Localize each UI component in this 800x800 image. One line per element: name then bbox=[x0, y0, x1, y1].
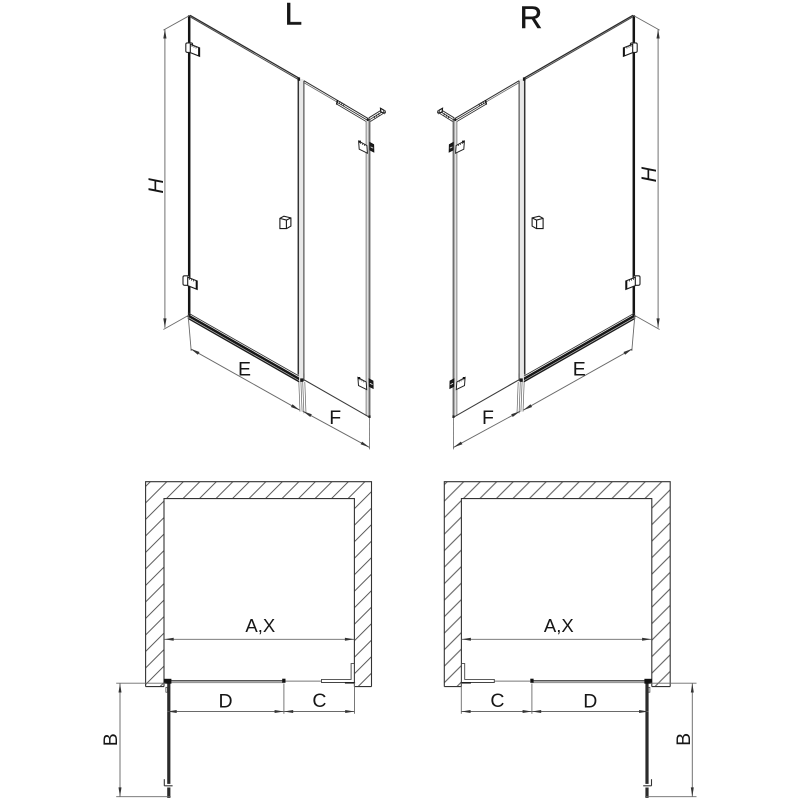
svg-text:L: L bbox=[285, 0, 303, 31]
svg-text:H: H bbox=[637, 166, 661, 182]
svg-text:C: C bbox=[312, 690, 326, 712]
svg-text:H: H bbox=[144, 178, 168, 194]
svg-text:E: E bbox=[238, 358, 251, 380]
svg-text:A,X: A,X bbox=[245, 615, 275, 636]
svg-text:F: F bbox=[482, 407, 494, 429]
svg-text:C: C bbox=[490, 690, 504, 712]
svg-text:F: F bbox=[329, 407, 341, 429]
svg-text:B: B bbox=[673, 733, 695, 746]
svg-text:R: R bbox=[520, 0, 543, 35]
svg-text:D: D bbox=[583, 690, 597, 712]
svg-text:A,X: A,X bbox=[544, 615, 574, 636]
svg-text:E: E bbox=[573, 358, 586, 380]
svg-text:B: B bbox=[100, 733, 122, 746]
svg-text:D: D bbox=[218, 690, 232, 712]
